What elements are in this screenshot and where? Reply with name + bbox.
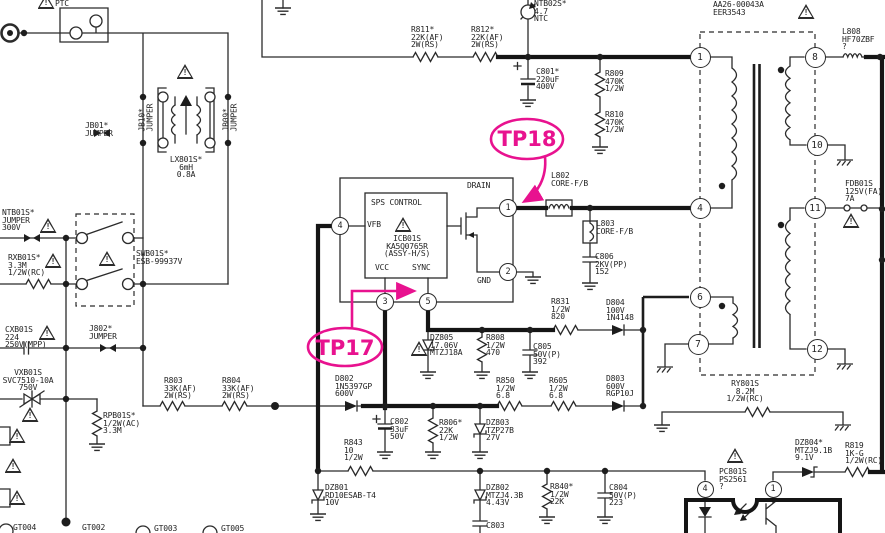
wires-thin bbox=[0, 0, 880, 533]
dashed-outlines bbox=[76, 32, 815, 375]
wires-medium bbox=[378, 64, 760, 429]
schematic-wires bbox=[0, 0, 885, 533]
component-symbols bbox=[2, 5, 868, 500]
schematic-page: { "meta": { "kind": "smps-circuit-schema… bbox=[0, 0, 885, 533]
ground-symbols bbox=[89, 8, 853, 523]
wires-thick bbox=[318, 57, 885, 472]
junction-dots bbox=[7, 2, 814, 521]
